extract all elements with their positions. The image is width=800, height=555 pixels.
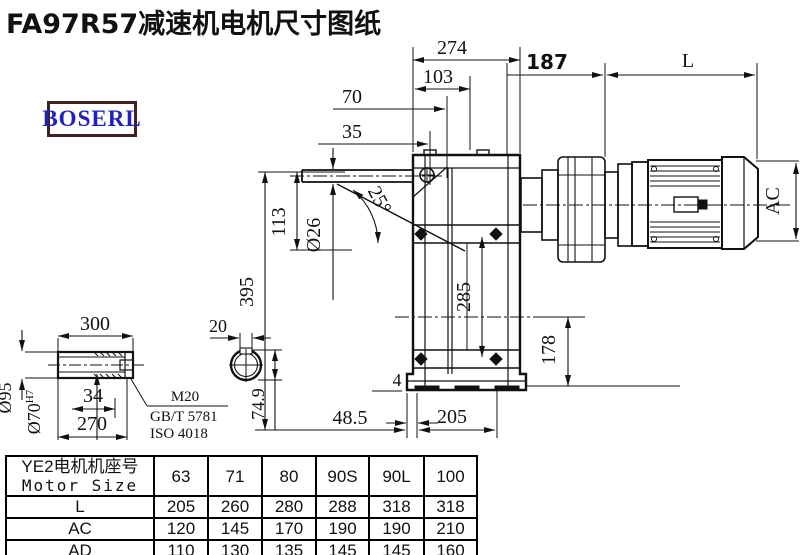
page: FA97R57减速机电机尺寸图纸 BOSERL [0,0,800,555]
cell-AC-100: 210 [424,518,477,540]
dim-48-5: 48.5 [333,407,368,429]
cell-L-100: 318 [424,496,477,518]
callout-gb: GB/T 5781 [150,409,218,425]
dim-AC: AC [762,187,784,215]
header-motor-size-cn: YE2电机机座号 [7,457,153,476]
row-label-AC: AC [6,518,154,540]
dim-395: 395 [236,277,258,307]
motor [632,157,758,249]
dimension-lines [22,60,796,440]
cell-AD-90s: 145 [316,540,369,555]
header-motor-size: YE2电机机座号 Motor Size [6,456,154,496]
header-size-100: 100 [424,456,477,496]
motor-size-table: YE2电机机座号 Motor Size 63 71 80 90S 90L 100… [5,455,478,555]
cell-AD-71: 130 [208,540,262,555]
gear-unit-r57 [521,157,632,262]
table-row-AC: AC 120 145 170 190 190 210 [6,518,477,540]
table-row-L: L 205 260 280 288 318 318 [6,496,477,518]
dim-70: 70 [342,86,362,108]
cell-AC-63: 120 [154,518,208,540]
dim-34: 34 [83,385,103,407]
header-size-63: 63 [154,456,208,496]
dimension-labels: 274 103 70 35 187 L 395 113 Ø26 25° 285 … [0,37,784,442]
callout-iso: ISO 4018 [150,426,208,442]
table-header-row: YE2电机机座号 Motor Size 63 71 80 90S 90L 100 [6,456,477,496]
cell-AC-90s: 190 [316,518,369,540]
cell-AC-71: 145 [208,518,262,540]
header-size-80: 80 [262,456,316,496]
dim-300: 300 [80,313,110,335]
cell-L-71: 260 [208,496,262,518]
header-size-90s: 90S [316,456,369,496]
dim-103: 103 [423,66,453,88]
dim-L: L [682,50,694,72]
cell-L-90l: 318 [369,496,424,518]
header-size-90l: 90L [369,456,424,496]
header-motor-size-en: Motor Size [7,476,153,495]
cell-L-80: 280 [262,496,316,518]
dim-4: 4 [393,370,402,390]
dim-205: 205 [437,406,467,428]
dim-74-9: 74.9 [248,388,268,420]
dim-keyway-20: 20 [209,316,227,336]
dimension-drawing: 274 103 70 35 187 L 395 113 Ø26 25° 285 … [0,0,800,455]
cell-AC-80: 170 [262,518,316,540]
cell-AD-80: 135 [262,540,316,555]
dim-274: 274 [437,37,467,59]
dim-dia95: Ø95 [0,383,15,414]
centerlines [48,176,790,365]
cell-AC-90l: 190 [369,518,424,540]
cell-AD-90l: 145 [369,540,424,555]
shaft-section-detail [229,333,282,382]
cell-AD-63: 110 [154,540,208,555]
dim-dia70h7: Ø70H7 [24,389,44,434]
dim-113: 113 [268,207,290,236]
dim-178: 178 [538,335,560,365]
dim-270: 270 [77,413,107,435]
callout-m20: M20 [171,389,199,405]
dim-285: 285 [453,282,475,312]
fan-cover [722,157,758,249]
dim-187: 187 [526,50,568,74]
gearbox-body [407,150,526,390]
table-row-AD: AD 110 130 135 145 145 160 [6,540,477,555]
cell-L-90s: 288 [316,496,369,518]
row-label-L: L [6,496,154,518]
dim-dia26: Ø26 [303,218,325,252]
row-label-AD: AD [6,540,154,555]
dim-35: 35 [342,121,362,143]
cell-L-63: 205 [154,496,208,518]
header-size-71: 71 [208,456,262,496]
cell-AD-100: 160 [424,540,477,555]
